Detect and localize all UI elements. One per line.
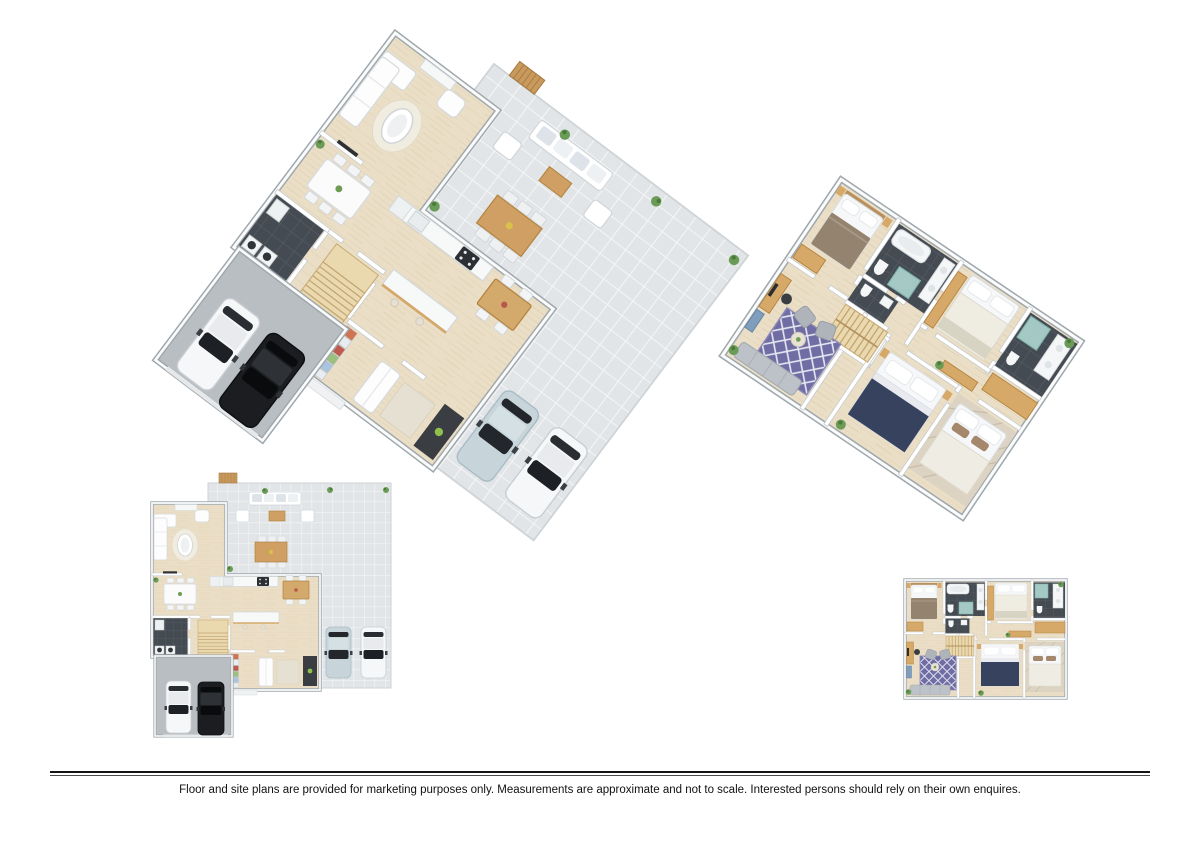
upper-floor-3d-plan bbox=[722, 179, 1081, 517]
disclaimer-text: Floor and site plans are provided for ma… bbox=[0, 784, 1200, 796]
ground-floor-2d-plan bbox=[152, 473, 391, 736]
floor-plans-graphic bbox=[0, 0, 1200, 848]
footer-divider bbox=[50, 771, 1150, 776]
upper-floor-2d-plan bbox=[905, 580, 1066, 698]
floor-plan-sheet: Floor and site plans are provided for ma… bbox=[0, 0, 1200, 848]
